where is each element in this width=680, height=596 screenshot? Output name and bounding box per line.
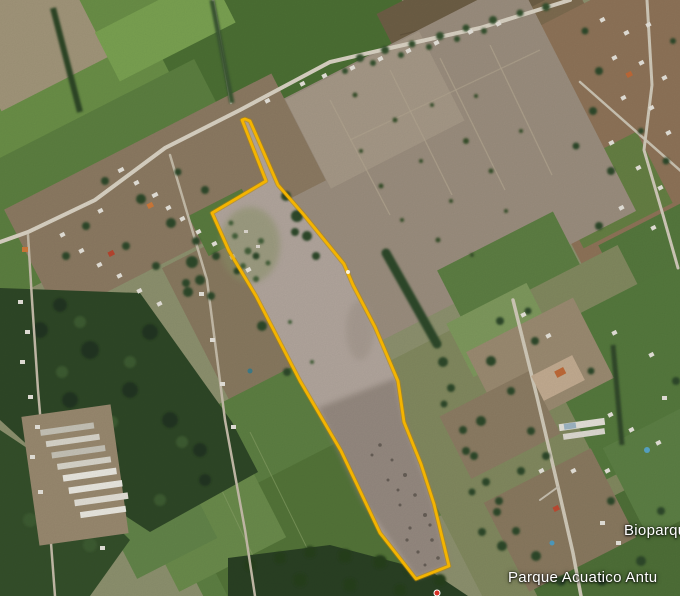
imagery-grain-overlay [0,0,680,596]
map-label-bioparque[interactable]: Bioparque [624,523,680,539]
satellite-map-view[interactable]: Bioparque Parque Acuatico Antu [0,0,680,596]
satellite-imagery [0,0,680,596]
small-poi-marker[interactable] [434,590,440,596]
map-label-parque-acuatico-antu[interactable]: Parque Acuatico Antu [508,570,657,586]
parcel-vertex-dot [346,270,350,274]
